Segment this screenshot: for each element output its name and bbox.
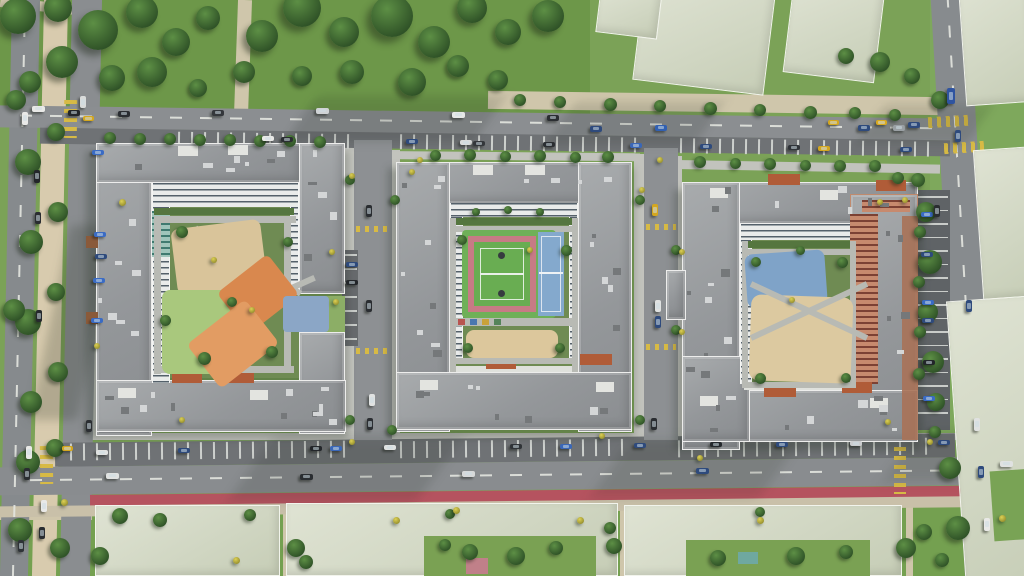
car: [788, 145, 800, 150]
car-windshield: [27, 449, 30, 456]
car: [24, 468, 30, 480]
roof-vent: [613, 268, 621, 276]
tree: [162, 28, 190, 56]
block3-facade-north: [740, 224, 858, 240]
car: [560, 444, 572, 449]
roof-vent: [592, 234, 596, 238]
car-windshield: [926, 361, 933, 364]
roof-vent: [868, 198, 872, 206]
roof-vent: [132, 270, 142, 276]
basketball-hoop: [498, 252, 505, 259]
car-windshield: [81, 99, 84, 105]
car-windshield: [99, 451, 106, 454]
car-windshield: [368, 421, 371, 427]
parking-line: [918, 223, 948, 225]
parking-line: [810, 140, 812, 155]
car-windshield: [791, 146, 798, 149]
roof-vent: [140, 405, 147, 413]
parking-line: [504, 440, 506, 457]
tree: [889, 109, 901, 121]
car-windshield: [95, 151, 102, 154]
roof-vent: [234, 156, 240, 162]
roof-vent: [725, 187, 731, 194]
yellow-shrub: [679, 329, 685, 335]
pergola: [768, 174, 800, 185]
car: [41, 500, 47, 512]
bench: [470, 319, 477, 325]
parking-line: [83, 443, 85, 460]
car: [900, 147, 912, 152]
tree: [488, 70, 508, 90]
courtyard-path: [450, 218, 456, 372]
car: [630, 143, 642, 148]
basketball-hoop: [498, 290, 505, 297]
yellow-shrub: [789, 297, 795, 303]
roof-vent: [304, 254, 312, 261]
roof-vent: [151, 392, 155, 398]
car: [22, 112, 28, 125]
parking-line: [595, 439, 597, 456]
car-windshield: [349, 281, 356, 284]
parking-line: [771, 139, 773, 154]
yellow-shrub: [233, 557, 240, 564]
roof-vent: [590, 242, 594, 247]
tree: [47, 123, 65, 141]
tree: [46, 46, 78, 78]
car: [68, 110, 80, 116]
roof-vent: [438, 176, 445, 182]
tree: [654, 100, 666, 112]
tree: [463, 343, 473, 353]
tree-shadow-band: [545, 102, 724, 144]
tree: [283, 237, 293, 247]
tree: [606, 538, 622, 554]
parking-line: [582, 439, 584, 456]
car-windshield: [941, 441, 948, 444]
tree: [430, 150, 441, 161]
block1-facade-north: [152, 183, 299, 207]
tree: [710, 550, 726, 566]
tree: [913, 368, 925, 380]
roof-vent: [708, 283, 713, 286]
speed-bump: [646, 224, 676, 230]
courtyard-path: [450, 358, 578, 364]
tree-shadow-band: [284, 96, 506, 142]
car-windshield: [463, 141, 470, 144]
tree: [838, 48, 854, 64]
tree: [495, 19, 521, 45]
roof-vent: [687, 291, 691, 295]
car: [510, 444, 522, 449]
tree: [314, 136, 326, 148]
tree: [939, 457, 961, 479]
tree: [91, 547, 109, 565]
car: [876, 120, 887, 125]
tree: [3, 299, 25, 321]
tree: [834, 160, 846, 172]
car-windshield: [593, 127, 600, 130]
car-windshield: [924, 253, 931, 256]
tree: [935, 553, 949, 567]
tree: [390, 195, 400, 205]
roof-vent: [129, 219, 136, 226]
tree: [635, 415, 645, 425]
roof-vent: [105, 396, 113, 400]
speed-bump: [356, 348, 390, 354]
tree: [48, 202, 68, 222]
block1-wing-ne: [299, 143, 345, 294]
roof-vent: [608, 285, 613, 292]
car-windshield: [896, 126, 903, 129]
car-windshield: [911, 123, 918, 126]
hedge-band: [154, 208, 294, 215]
parking-line: [517, 136, 519, 151]
car: [923, 360, 935, 365]
tree: [507, 547, 525, 565]
yellow-shrub: [349, 439, 355, 445]
tree: [764, 158, 776, 170]
yellow-shrub: [94, 343, 100, 349]
roof-box: [228, 145, 248, 155]
roof-vent: [267, 159, 276, 163]
car-windshield: [925, 301, 932, 304]
car: [300, 474, 313, 480]
roof-vent: [495, 414, 499, 420]
crosswalk: [64, 100, 78, 138]
tree: [246, 20, 278, 52]
roof-vent: [613, 325, 620, 331]
car-windshield: [36, 215, 39, 221]
roof-box: [250, 390, 268, 400]
car: [94, 232, 106, 237]
tree: [914, 326, 926, 338]
entrance-canopy: [86, 236, 98, 248]
yellow-shrub: [577, 517, 584, 524]
car: [700, 144, 712, 149]
tree: [439, 539, 451, 551]
tree: [914, 226, 926, 238]
car-windshield: [37, 313, 40, 319]
parking-line: [849, 141, 851, 156]
car: [651, 418, 657, 430]
roof-vent: [775, 201, 779, 208]
roof-vent: [578, 180, 582, 184]
roof-vent: [848, 207, 853, 214]
roof-vent: [277, 151, 284, 157]
roof-vent: [433, 350, 442, 357]
parking-line: [918, 345, 948, 347]
car: [547, 115, 559, 121]
tree: [869, 160, 881, 172]
roof-vent: [897, 350, 904, 354]
car-windshield: [861, 126, 868, 129]
car: [96, 450, 108, 455]
roof-vent: [712, 206, 719, 212]
tree: [796, 246, 805, 255]
tree: [755, 507, 765, 517]
car: [655, 300, 661, 312]
car-windshield: [476, 142, 483, 145]
car: [850, 441, 862, 446]
yellow-shrub: [599, 433, 605, 439]
car: [93, 278, 105, 283]
roof-box: [420, 380, 438, 390]
tree: [329, 17, 359, 47]
parking-line: [148, 443, 150, 460]
car-windshield: [98, 255, 105, 258]
parking-line: [556, 440, 558, 457]
parking-line: [465, 441, 467, 458]
car: [18, 540, 24, 552]
roof-vent: [726, 396, 735, 400]
car: [858, 125, 870, 131]
car: [95, 254, 107, 259]
roof-vent: [590, 407, 599, 414]
car: [974, 418, 980, 431]
tree: [472, 208, 480, 216]
neighbor-courtyard: [990, 469, 1024, 542]
car: [543, 142, 555, 147]
parking-line: [122, 443, 124, 460]
car-windshield: [25, 471, 28, 477]
tree: [398, 68, 426, 96]
roof-vent: [721, 269, 730, 277]
car: [923, 396, 935, 401]
tree: [19, 71, 41, 93]
car-windshield: [265, 137, 272, 140]
roof-vent: [402, 183, 407, 188]
car: [652, 204, 658, 216]
roof-vent: [319, 404, 323, 412]
tree: [896, 538, 916, 558]
car: [966, 300, 972, 312]
car: [452, 112, 465, 118]
car: [366, 300, 372, 312]
car-windshield: [656, 303, 659, 309]
roof-vent: [604, 177, 612, 182]
parking-line: [608, 439, 610, 456]
roof-vent: [600, 408, 608, 414]
roof-vent: [901, 312, 910, 318]
roof-vent: [245, 162, 249, 166]
play-structure: [466, 558, 488, 574]
tree: [911, 173, 925, 187]
car: [406, 139, 418, 144]
car-windshield: [19, 543, 22, 549]
tree: [555, 343, 565, 353]
tree: [870, 52, 890, 72]
car-windshield: [656, 319, 659, 325]
tree: [839, 545, 853, 559]
car: [316, 108, 329, 114]
car: [922, 300, 934, 305]
car: [35, 212, 41, 224]
tree: [929, 426, 941, 438]
car: [696, 468, 709, 474]
car: [893, 125, 905, 131]
car-windshield: [925, 319, 932, 322]
tree: [244, 509, 256, 521]
tree: [604, 98, 617, 111]
yellow-shrub: [885, 419, 891, 425]
roof-vent: [705, 297, 712, 303]
parking-line: [543, 440, 545, 457]
roof-vent: [551, 178, 560, 184]
tree: [800, 160, 811, 171]
roof-vent: [602, 277, 608, 284]
courtyard-path: [154, 216, 161, 374]
parking-line: [530, 136, 532, 151]
car: [590, 126, 602, 132]
car: [828, 120, 839, 125]
car: [818, 146, 830, 151]
tree: [730, 158, 741, 169]
car: [34, 170, 40, 183]
roof-vent: [880, 411, 888, 415]
car-windshield: [926, 397, 933, 400]
court-midline: [480, 273, 524, 275]
parking-line: [478, 440, 480, 457]
tree: [754, 104, 766, 116]
tree: [20, 391, 42, 413]
tree: [534, 150, 546, 162]
parking-line: [530, 440, 532, 457]
car-windshield: [550, 116, 557, 119]
parking-line: [918, 196, 948, 198]
roof-vent: [886, 231, 890, 235]
car-windshield: [87, 423, 90, 429]
yellow-shrub: [927, 439, 933, 445]
car: [32, 106, 45, 112]
roof-box: [118, 388, 136, 398]
tree: [227, 297, 237, 307]
play-structure: [738, 552, 758, 564]
car-windshield: [64, 447, 70, 450]
roof-vent: [874, 396, 883, 401]
car: [281, 137, 293, 142]
car-windshield: [35, 173, 38, 180]
car-windshield: [878, 121, 884, 124]
roof-vent: [887, 316, 891, 322]
car-windshield: [40, 530, 43, 536]
yellow-shrub: [349, 173, 355, 179]
car: [921, 252, 933, 257]
car: [86, 420, 92, 432]
bench: [458, 319, 465, 325]
roof-vent: [286, 389, 293, 396]
roof-vent: [108, 313, 117, 320]
car-windshield: [713, 443, 720, 446]
car: [922, 318, 934, 323]
parking-line: [226, 442, 228, 459]
car: [310, 446, 322, 451]
tree: [554, 96, 566, 108]
car: [1000, 461, 1013, 467]
car: [978, 466, 984, 478]
neighbor-building: [958, 0, 1024, 106]
roof-vent: [879, 405, 888, 412]
roof-vent: [321, 387, 328, 391]
car: [938, 440, 950, 445]
roof-vent: [525, 416, 533, 423]
car: [462, 471, 475, 477]
tree: [570, 152, 581, 163]
parking-line: [109, 443, 111, 460]
tree: [904, 68, 920, 84]
tree: [19, 230, 43, 254]
car: [83, 116, 94, 121]
roof-vent: [417, 330, 424, 335]
car: [36, 310, 42, 322]
blue-court-lines: [541, 236, 561, 312]
tree: [532, 0, 564, 32]
parking-line: [213, 442, 215, 459]
yellow-shrub: [249, 307, 255, 313]
tree: [635, 195, 645, 205]
blue-court-divider: [539, 272, 563, 274]
roof-vent: [701, 371, 710, 379]
tree: [604, 522, 616, 534]
tree: [99, 65, 125, 91]
roof-vent: [318, 192, 326, 198]
yellow-shrub: [657, 157, 663, 163]
yellow-shrub: [119, 199, 126, 206]
roof-vent: [807, 416, 814, 424]
tree: [153, 513, 167, 527]
tree: [134, 133, 146, 145]
roof-vent: [710, 428, 718, 433]
sand-playground: [466, 330, 558, 358]
car: [366, 205, 372, 217]
car: [473, 141, 485, 146]
car: [212, 110, 224, 116]
roof-vent: [838, 186, 847, 193]
car: [80, 96, 86, 108]
car: [92, 150, 104, 155]
car: [655, 316, 661, 328]
car: [118, 111, 130, 117]
tree: [751, 257, 761, 267]
yellow-shrub: [211, 257, 217, 263]
tree: [48, 362, 68, 382]
tree: [694, 156, 706, 168]
tree: [549, 541, 563, 555]
tree: [50, 538, 70, 558]
tree: [340, 60, 364, 84]
roof-box: [525, 165, 545, 175]
car-windshield: [409, 140, 416, 143]
car-windshield: [349, 263, 356, 266]
tree: [602, 151, 614, 163]
tree: [755, 373, 766, 384]
roof-box: [820, 190, 838, 200]
hedge-band: [452, 218, 578, 225]
yellow-shrub: [697, 455, 703, 461]
bench: [482, 319, 489, 325]
car: [330, 446, 342, 451]
parking-line: [135, 443, 137, 460]
roof-vent: [422, 392, 430, 395]
car-windshield: [215, 111, 222, 114]
car-windshield: [313, 447, 320, 450]
bench: [494, 319, 501, 325]
parking-line: [758, 139, 760, 154]
car-windshield: [967, 303, 970, 309]
roof-vent: [716, 405, 720, 411]
roof-vent: [401, 272, 405, 276]
car-windshield: [303, 475, 310, 478]
roof-vent: [313, 150, 317, 157]
